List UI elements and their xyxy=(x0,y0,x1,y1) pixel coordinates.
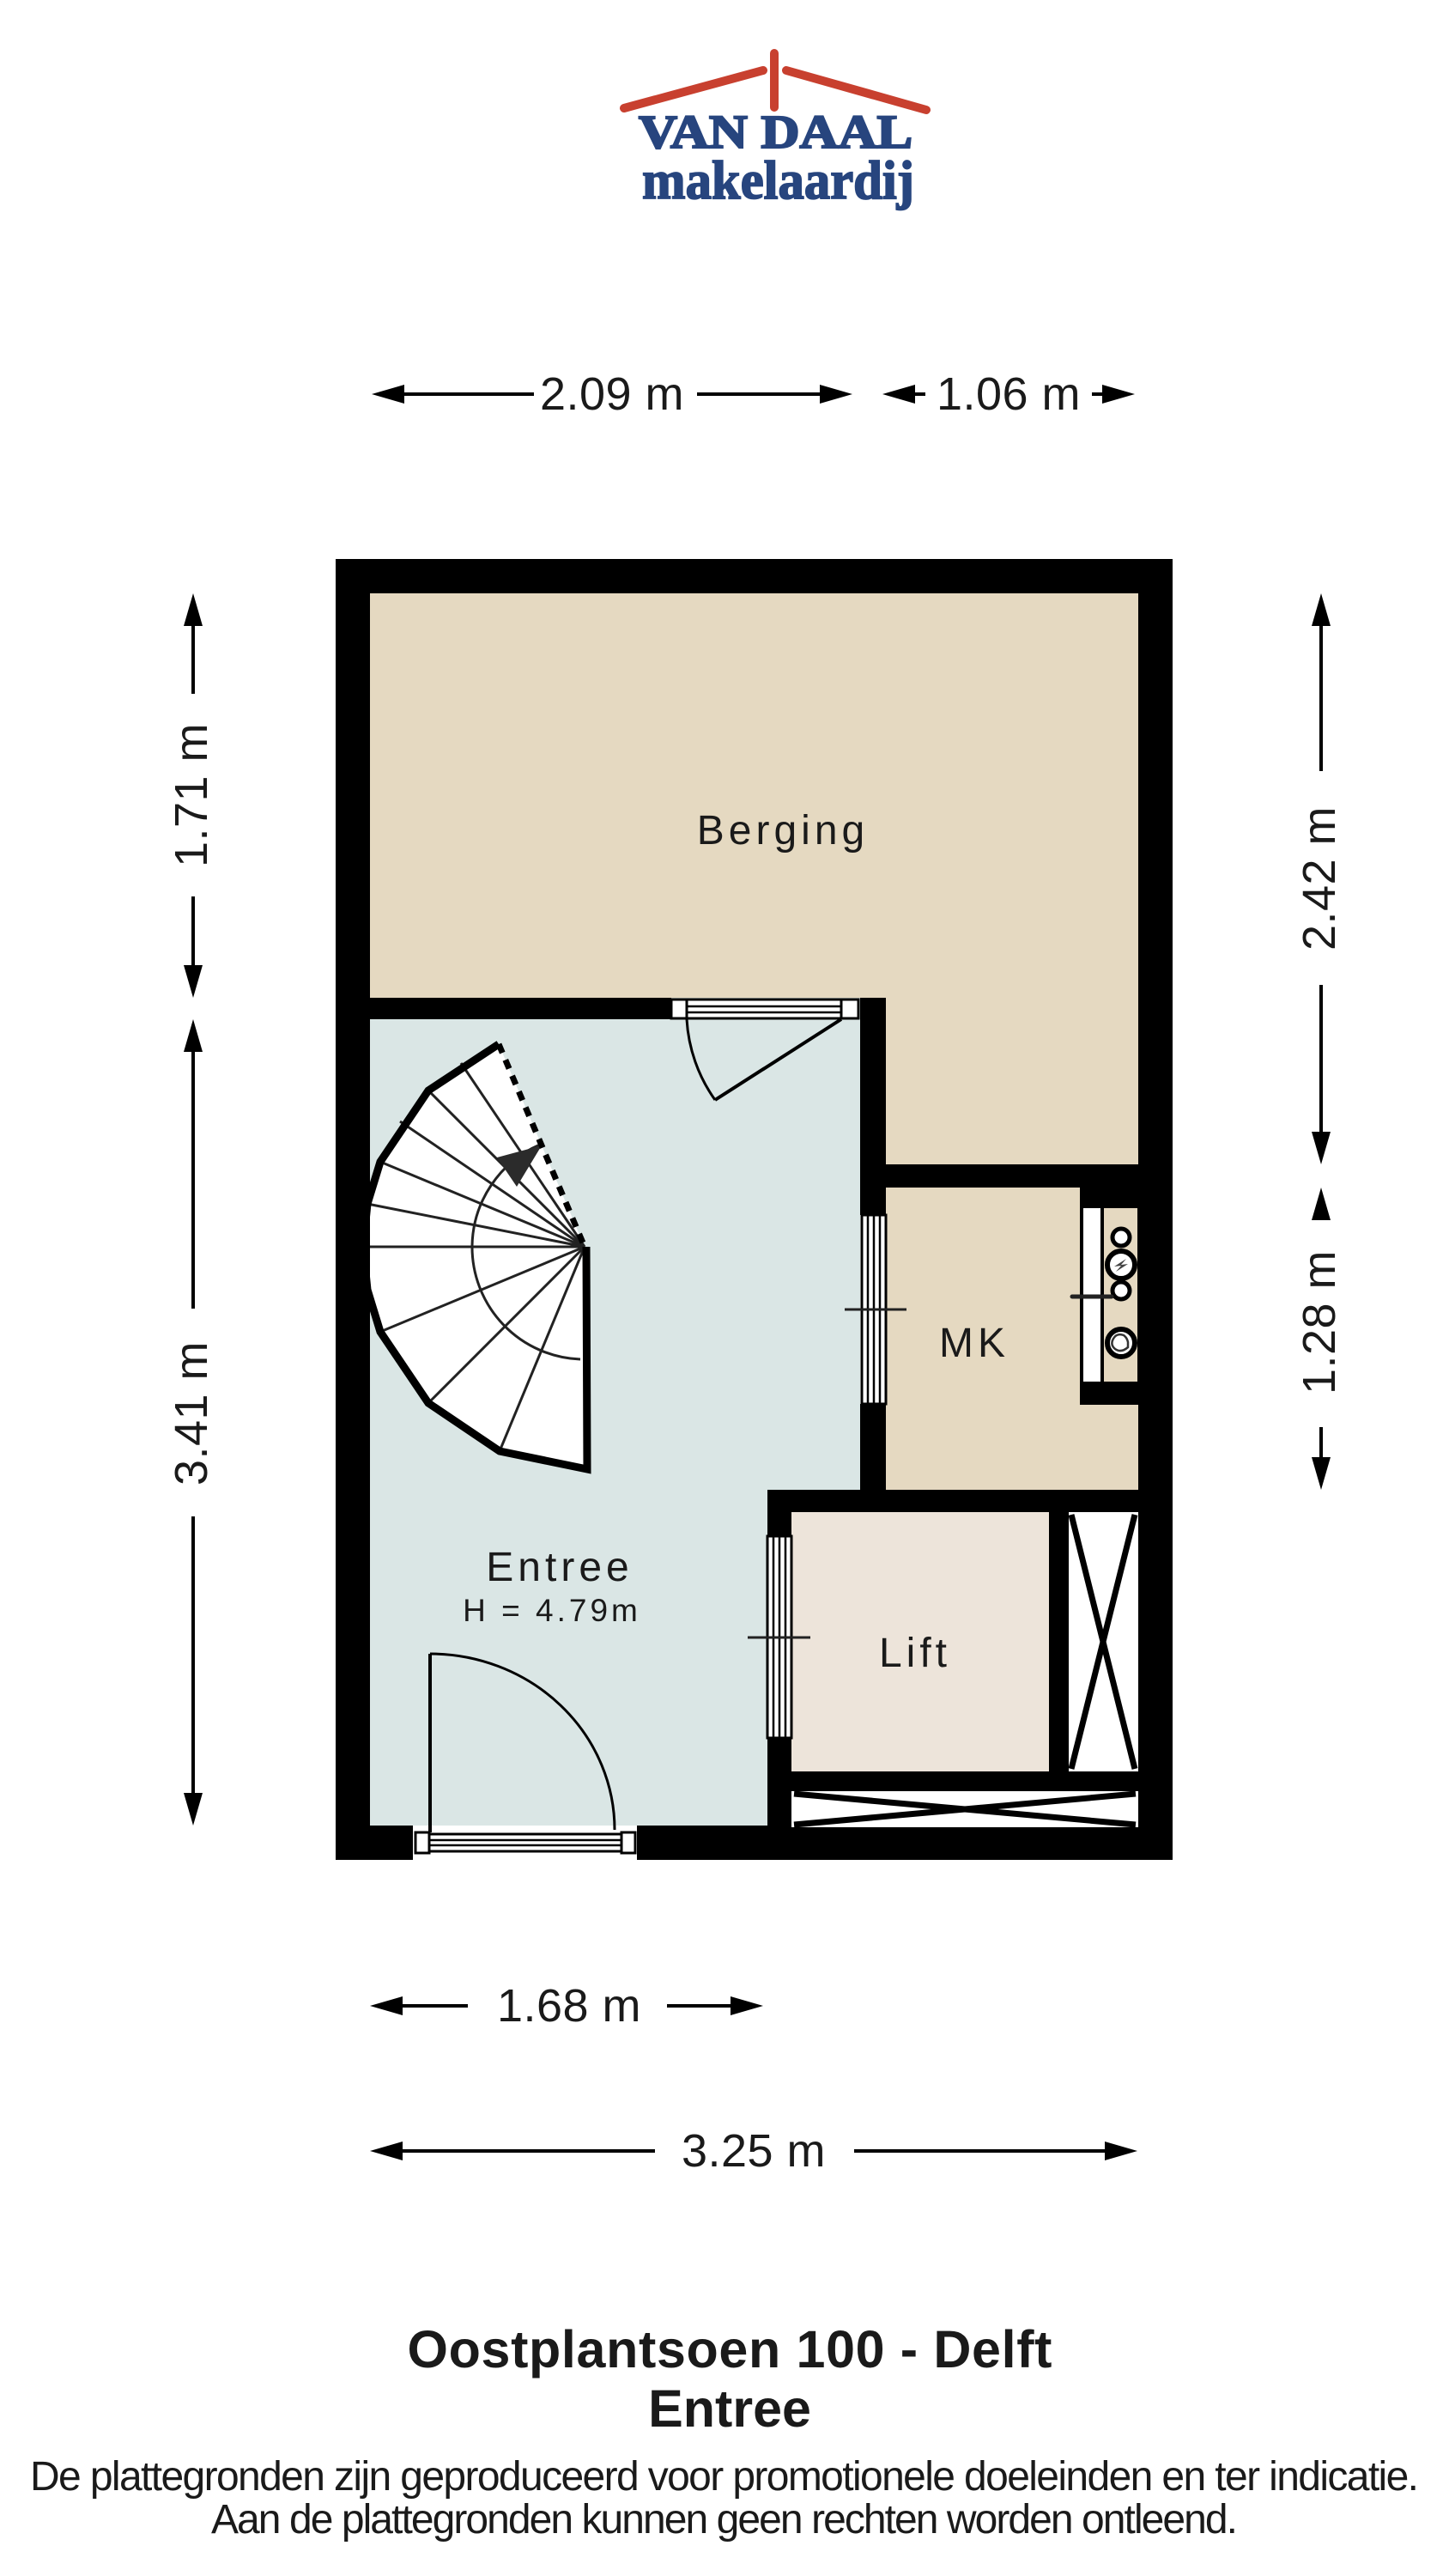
svg-text:MK: MK xyxy=(939,1321,1009,1366)
svg-text:makelaardij: makelaardij xyxy=(642,149,914,210)
svg-text:1.71 m: 1.71 m xyxy=(166,723,217,867)
svg-text:2.42 m: 2.42 m xyxy=(1294,806,1345,951)
svg-text:De plattegronden zijn geproduc: De plattegronden zijn geproduceerd voor … xyxy=(30,2454,1419,2500)
svg-text:3.25 m: 3.25 m xyxy=(682,2125,826,2177)
svg-text:1.68 m: 1.68 m xyxy=(497,1980,641,2032)
svg-text:Entree: Entree xyxy=(486,1545,633,1590)
svg-text:H = 4.79m: H = 4.79m xyxy=(463,1593,641,1628)
svg-text:Oostplantsoen 100 - Delft: Oostplantsoen 100 - Delft xyxy=(408,2320,1052,2379)
svg-text:Berging: Berging xyxy=(697,808,869,854)
svg-text:Lift: Lift xyxy=(879,1631,951,1676)
svg-text:2.09 m: 2.09 m xyxy=(540,368,684,420)
svg-text:Entree: Entree xyxy=(648,2379,811,2438)
svg-text:1.28 m: 1.28 m xyxy=(1294,1250,1345,1394)
svg-text:Aan de plattegronden kunnen ge: Aan de plattegronden kunnen geen rechten… xyxy=(211,2497,1238,2543)
svg-text:1.06 m: 1.06 m xyxy=(937,368,1081,420)
svg-text:3.41 m: 3.41 m xyxy=(166,1341,217,1485)
